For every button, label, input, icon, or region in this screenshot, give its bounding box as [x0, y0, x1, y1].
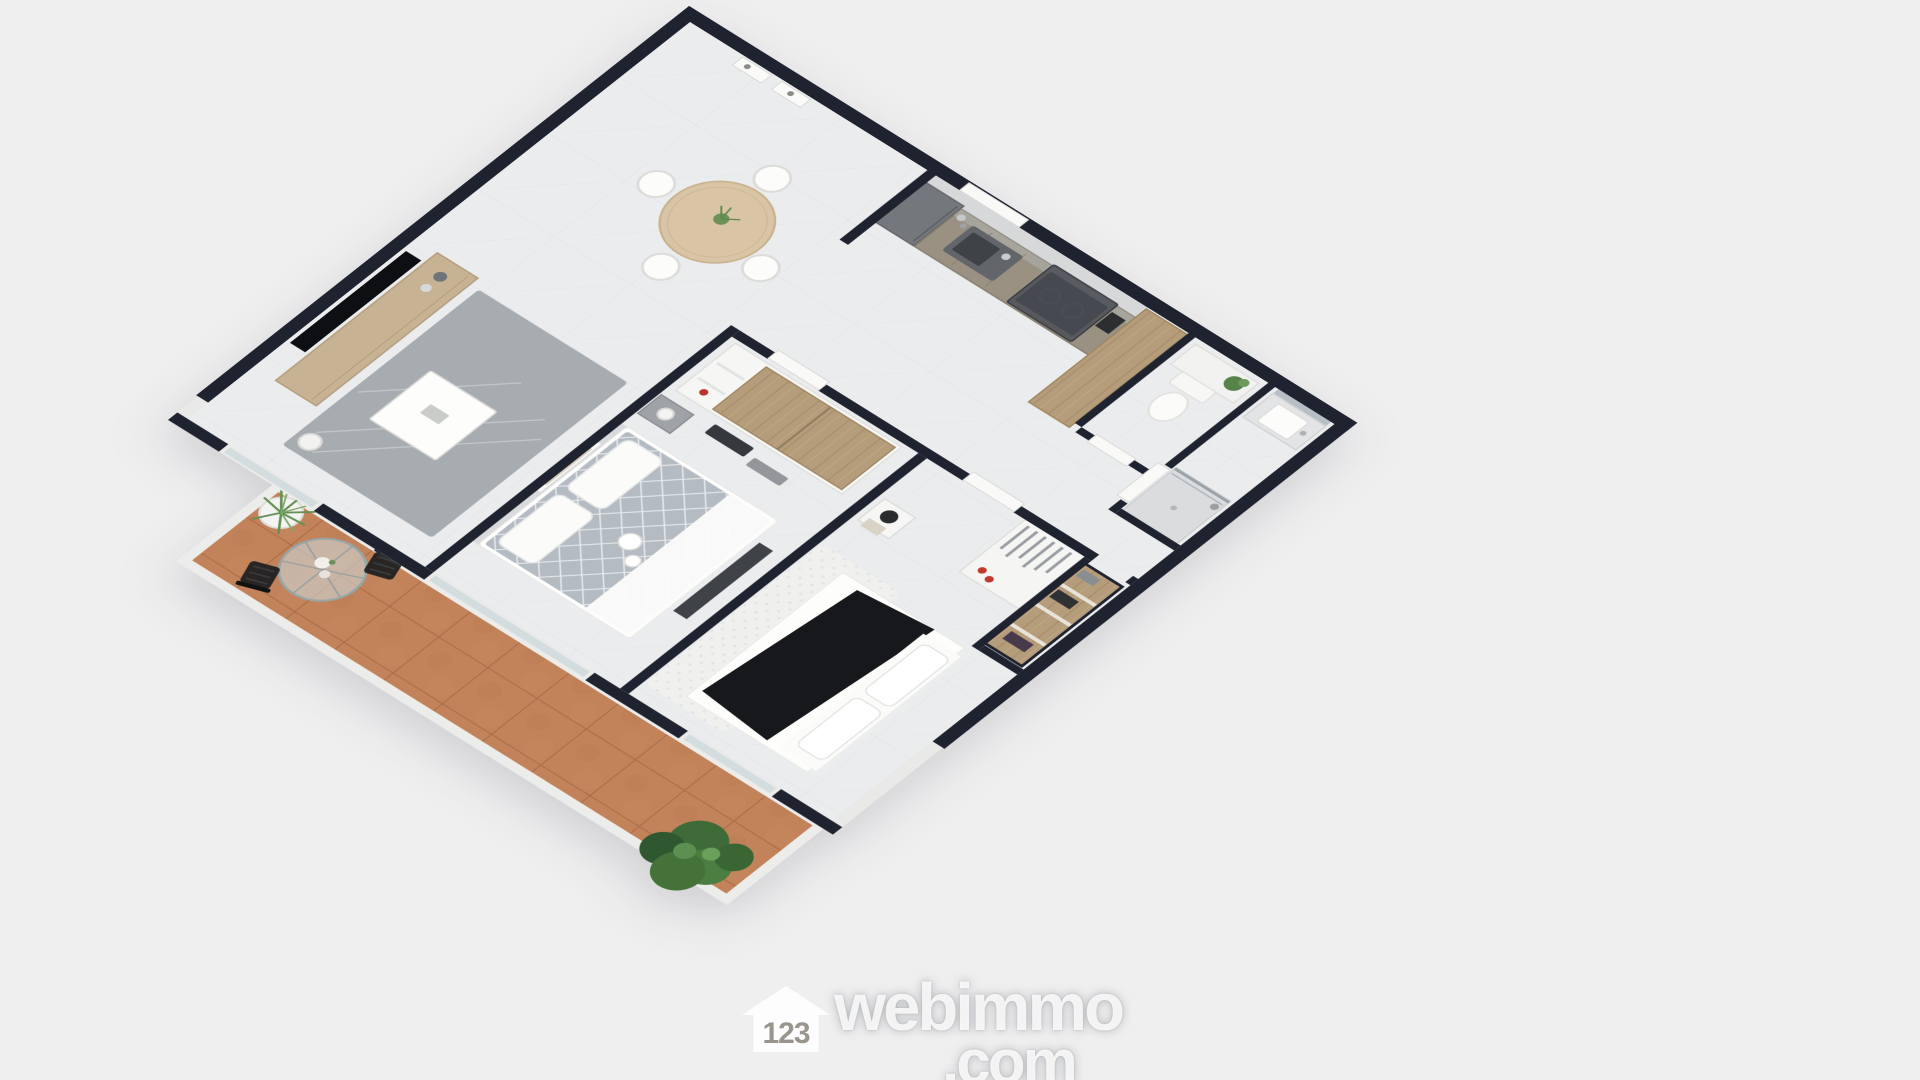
- floor-plan-canvas: [0, 0, 1920, 1080]
- screenshot-stage: 123 webimmo .com: [0, 0, 1920, 1080]
